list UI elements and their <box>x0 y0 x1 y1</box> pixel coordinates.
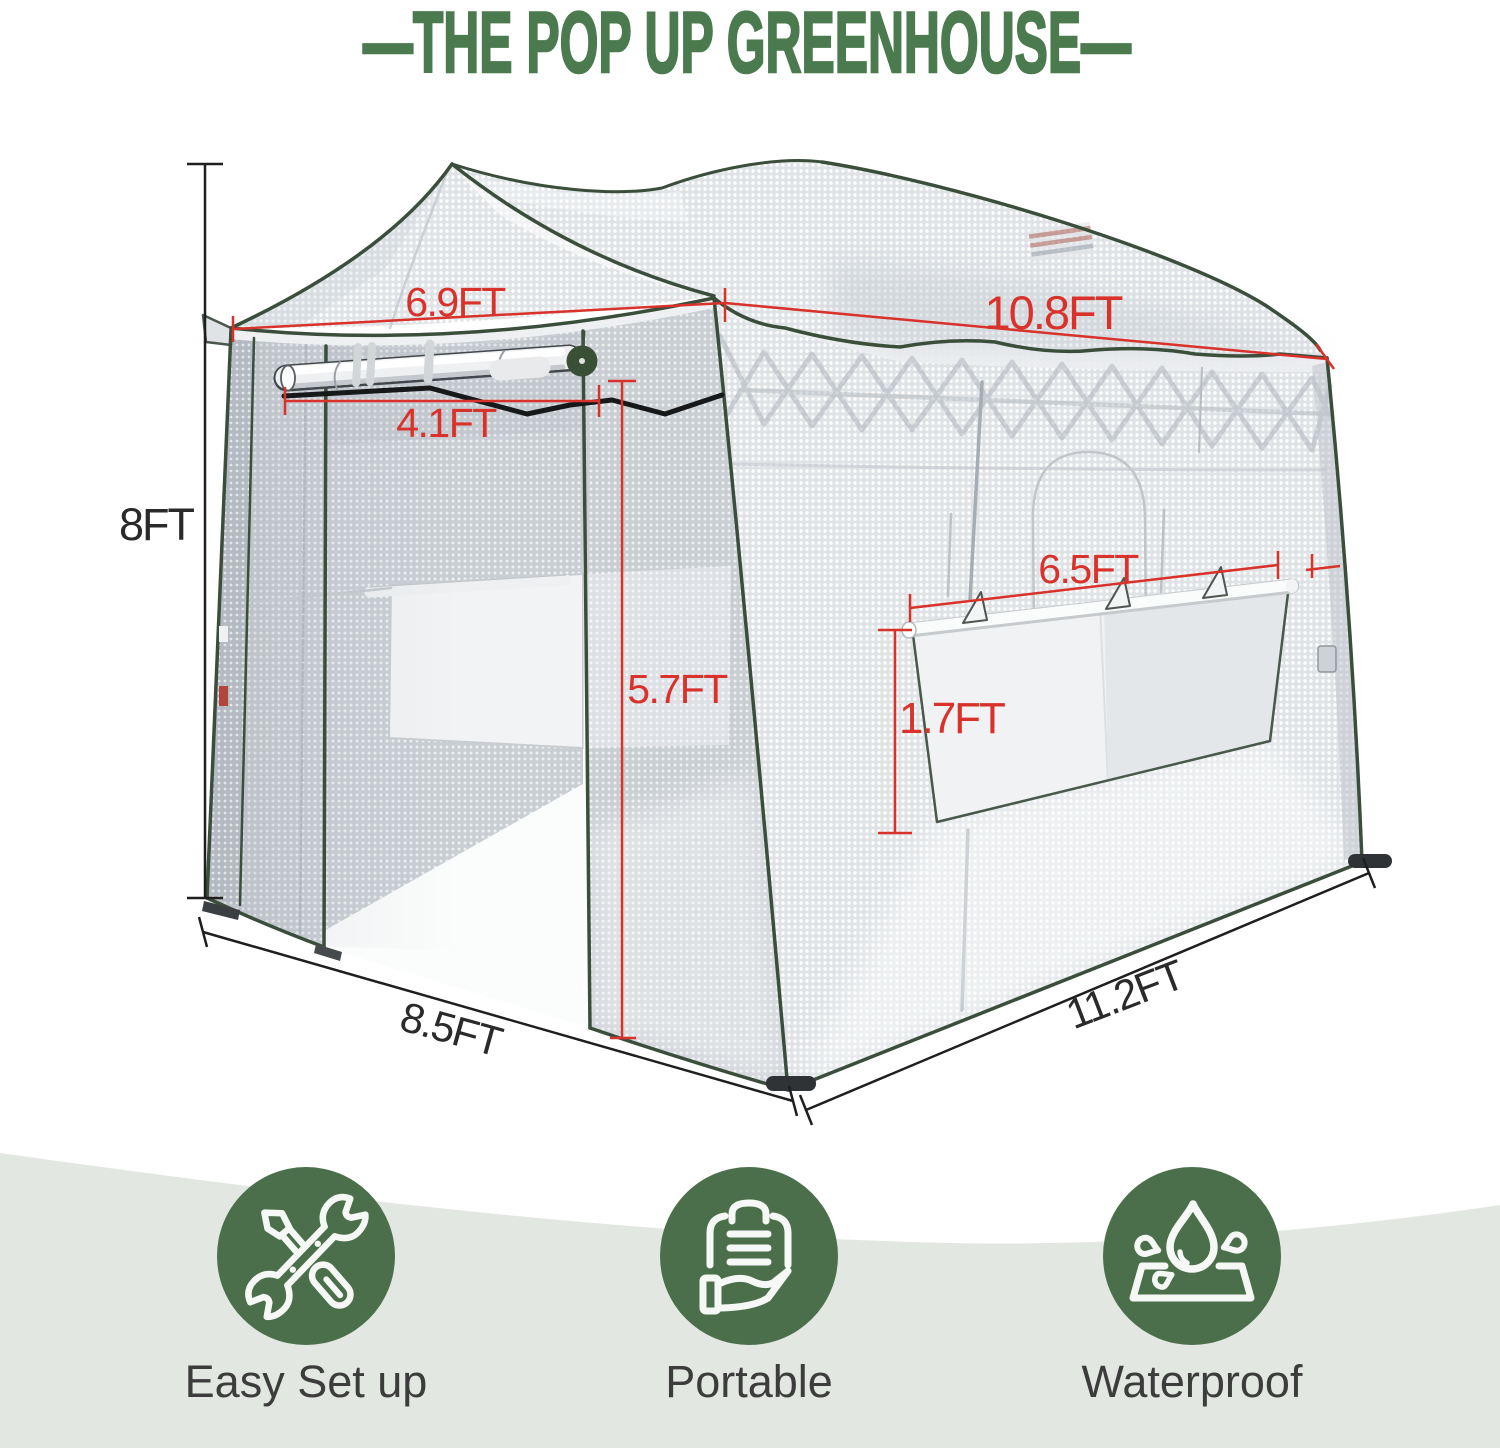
svg-text:8FT: 8FT <box>119 499 195 550</box>
svg-text:Easy Set up: Easy Set up <box>185 1356 428 1407</box>
svg-text:Waterproof: Waterproof <box>1082 1356 1303 1407</box>
svg-text:1.7FT: 1.7FT <box>899 694 1005 743</box>
svg-text:6.9FT: 6.9FT <box>405 279 506 325</box>
svg-text:Portable: Portable <box>665 1356 833 1407</box>
svg-text:—THE POP UP GREENHOUSE—: —THE POP UP GREENHOUSE— <box>363 0 1131 91</box>
svg-text:10.8FT: 10.8FT <box>985 286 1123 339</box>
svg-text:6.5FT: 6.5FT <box>1038 546 1139 592</box>
svg-text:4.1FT: 4.1FT <box>396 400 497 446</box>
svg-text:5.7FT: 5.7FT <box>627 666 728 712</box>
